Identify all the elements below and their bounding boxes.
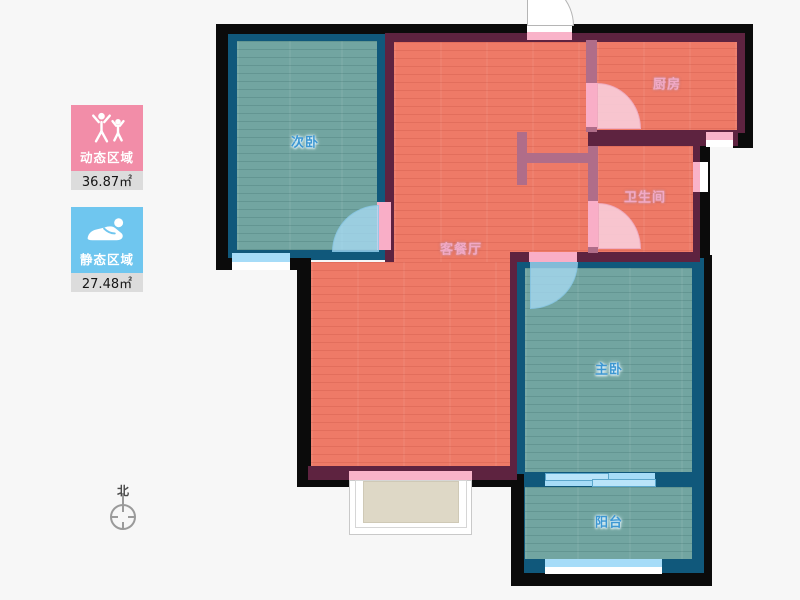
bathroom-door-panel <box>588 201 598 247</box>
wall-left-upper <box>216 24 228 270</box>
entry-door-sill <box>527 32 572 40</box>
secondary-bedroom-window <box>232 253 290 262</box>
floorplan: 次卧 厨房 卫生间 客餐厅 主卧 阳台 <box>0 0 800 600</box>
wall-master-bedroom-left <box>510 252 517 480</box>
porch-door-sill <box>349 471 472 480</box>
secondary-bedroom-door-panel <box>377 202 391 250</box>
living-dining-floor-upper <box>394 34 588 262</box>
room-label-living-dining: 客餐厅 <box>440 239 482 258</box>
room-label-secondary-bedroom: 次卧 <box>291 132 319 151</box>
wall-balcony-bottom <box>511 573 711 586</box>
room-label-balcony: 阳台 <box>595 512 623 531</box>
wall-kitchen-right <box>745 24 753 148</box>
kitchen-window <box>706 132 733 140</box>
kitchen-window-outer <box>706 140 733 147</box>
porch-step <box>363 481 459 523</box>
master-bedroom-door-panel <box>529 252 577 262</box>
room-label-bathroom: 卫生间 <box>624 187 666 206</box>
room-label-master-bedroom: 主卧 <box>595 359 623 378</box>
sliding-door-panel-right <box>592 479 656 487</box>
balcony-window <box>545 559 662 567</box>
balcony-window-outer <box>545 567 662 574</box>
living-dining-floor-lower <box>311 262 510 470</box>
wall-left-lower <box>297 258 311 487</box>
kitchen-door-panel <box>586 83 597 127</box>
entry-door-swing-arc <box>527 0 574 26</box>
secondary-bedroom-window-outer <box>232 262 290 270</box>
balcony-sliding-door <box>545 473 655 486</box>
north-compass-label: 北 <box>106 485 140 497</box>
wall-hall-stub-horizontal <box>517 153 588 163</box>
wall-balcony-left <box>511 474 524 586</box>
room-label-kitchen: 厨房 <box>653 74 681 93</box>
wall-right-lower <box>704 255 712 586</box>
bathroom-window <box>693 162 700 192</box>
bathroom-window-outer <box>700 162 708 192</box>
wall-kitchen-right-inner <box>737 33 745 133</box>
